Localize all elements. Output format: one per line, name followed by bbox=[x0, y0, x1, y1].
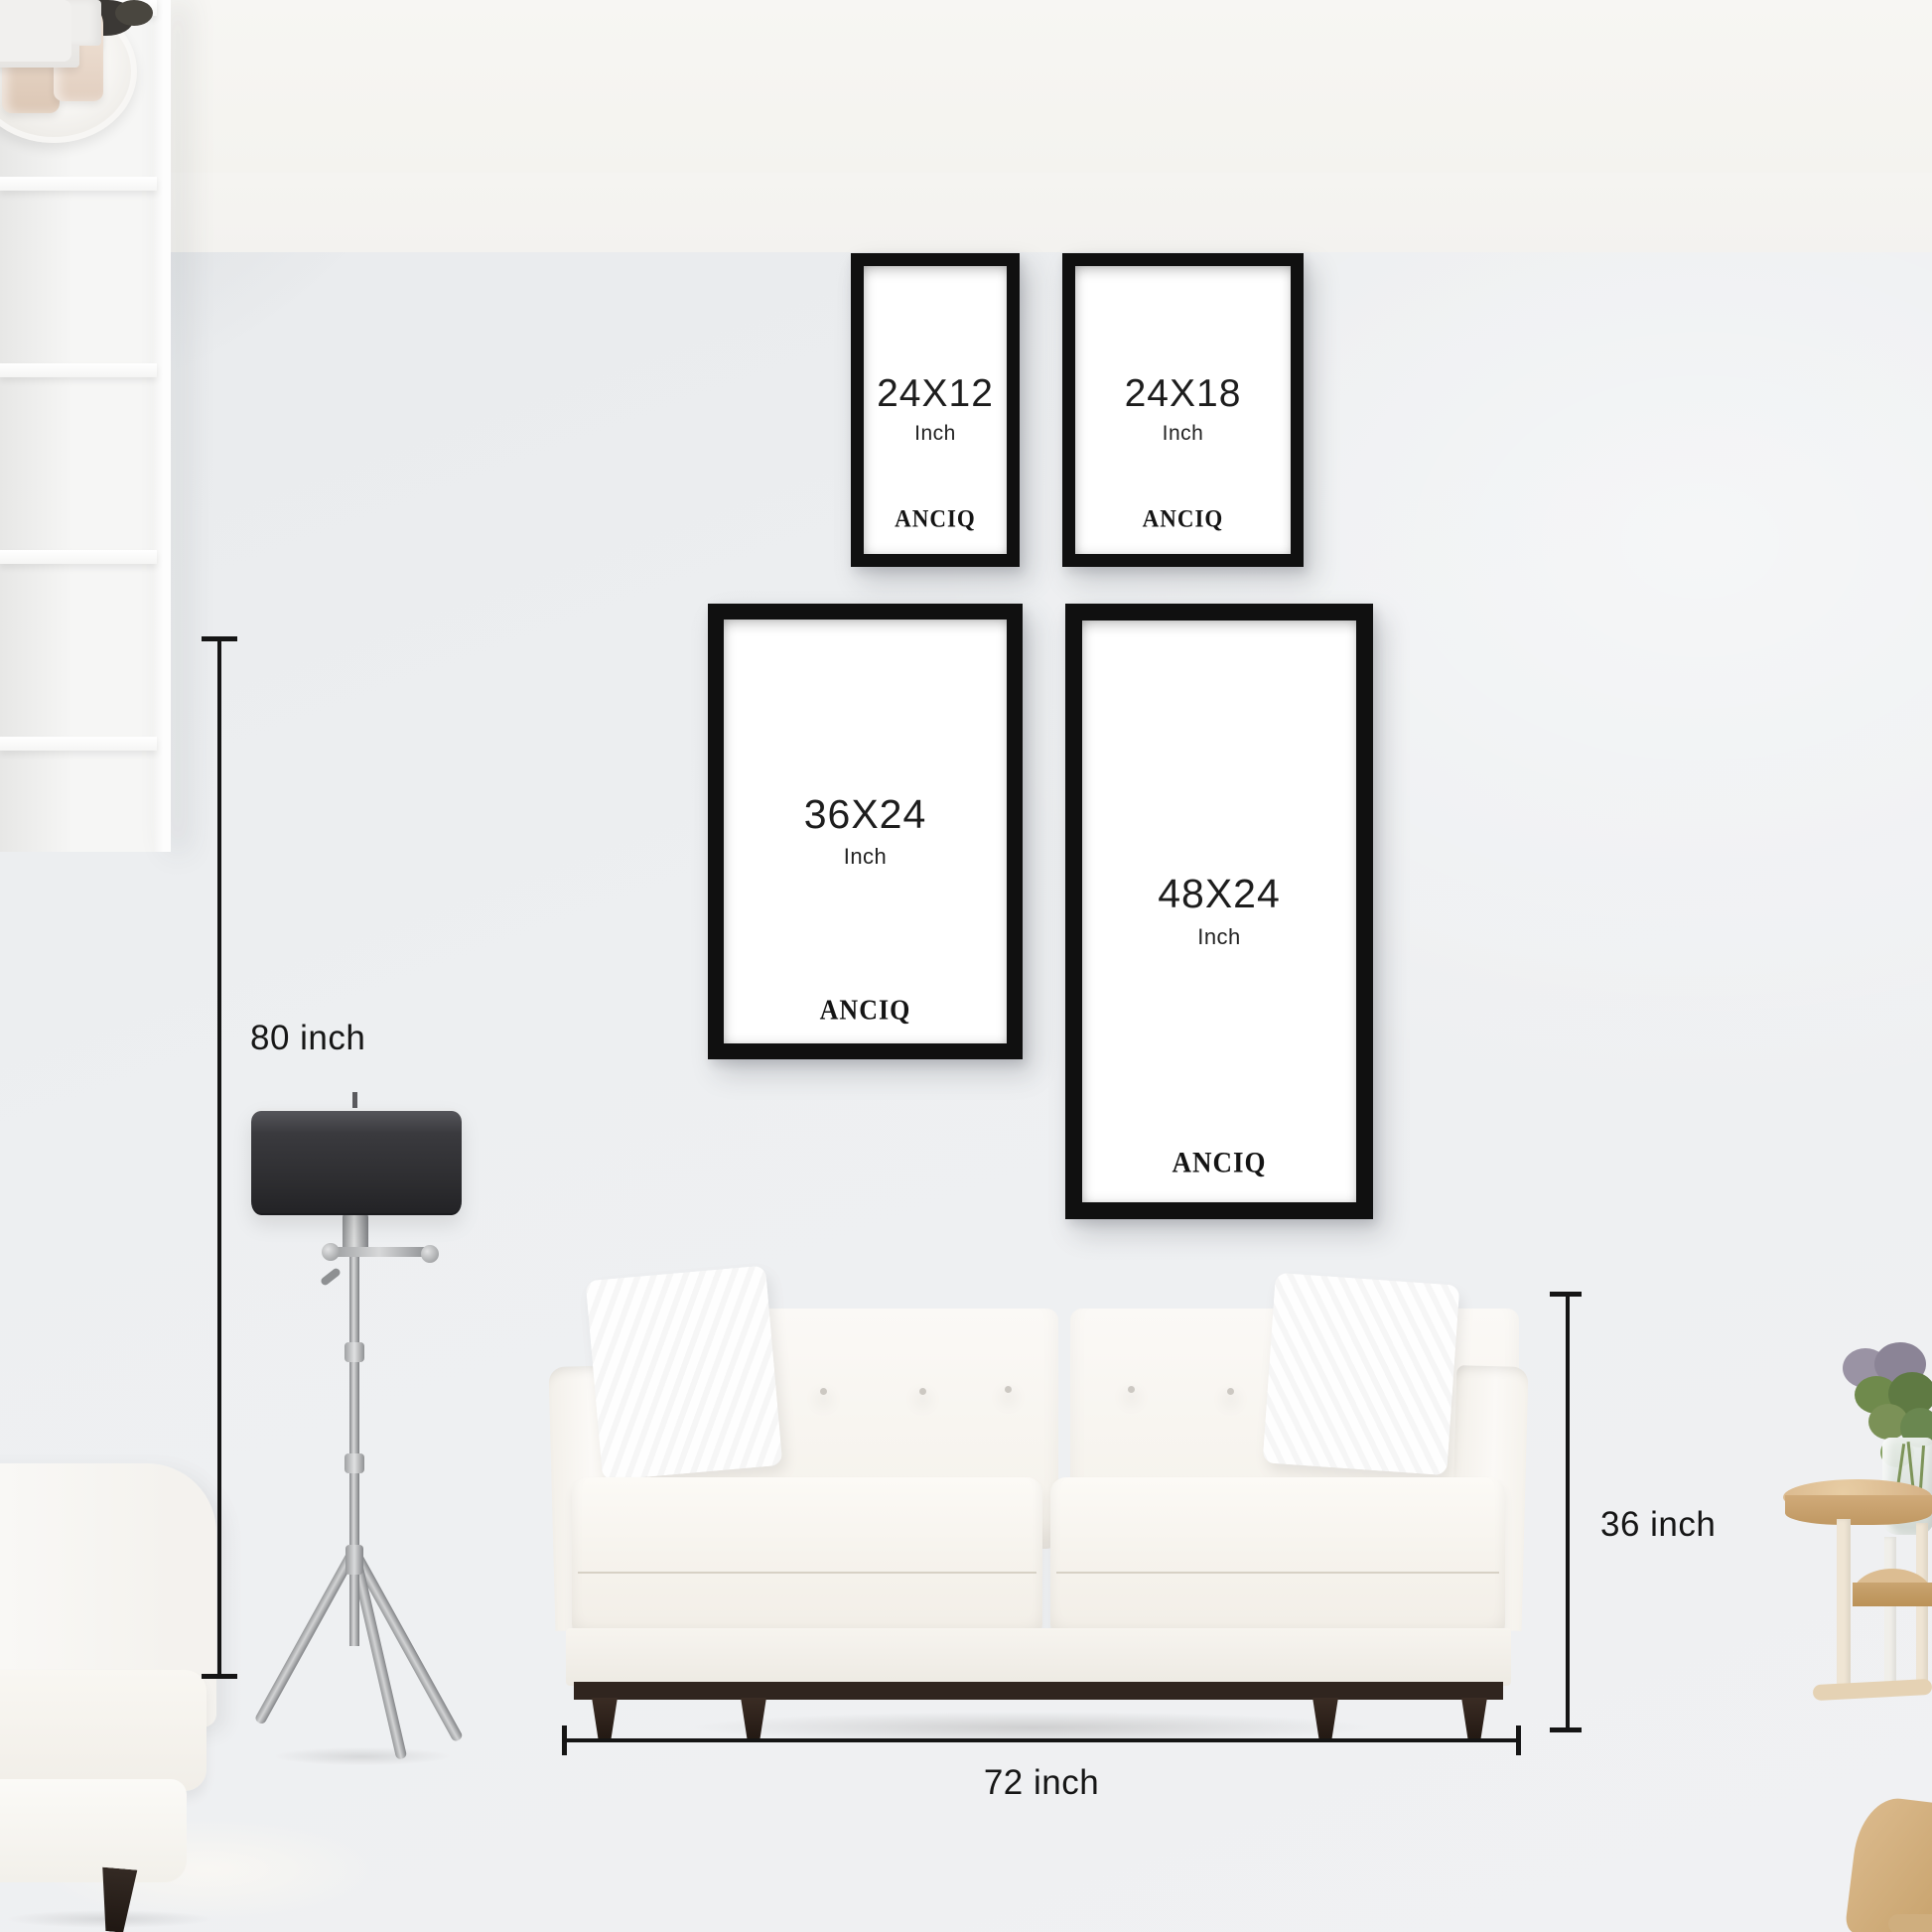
stool-foot-bottom-right bbox=[1888, 1914, 1932, 1932]
armchair-base bbox=[0, 1779, 187, 1882]
lamp-knob bbox=[322, 1243, 340, 1261]
frame-48x24: 48X24 Inch ANCIQ bbox=[1065, 604, 1373, 1219]
lamp-floor-shadow bbox=[238, 1743, 486, 1769]
armchair-floor-shadow bbox=[0, 1906, 258, 1932]
brand-logo: ANCIQ bbox=[864, 505, 1007, 533]
throw-pillow-right bbox=[1263, 1273, 1460, 1476]
sofa-width-dimension-line bbox=[564, 1738, 1519, 1742]
carpet bbox=[0, 0, 1932, 173]
bookshelf-board bbox=[0, 550, 157, 564]
decor-trinket bbox=[115, 0, 153, 26]
dimension-cap bbox=[202, 636, 237, 641]
side-table-leg bbox=[1884, 1537, 1896, 1696]
frame-24x12: 24X12 Inch ANCIQ bbox=[851, 253, 1020, 567]
lamp-pole bbox=[349, 1215, 359, 1646]
wall-height-dimension-line bbox=[217, 636, 221, 1679]
frame-unit-label: Inch bbox=[1197, 924, 1241, 950]
side-table-rim bbox=[1785, 1495, 1932, 1525]
dimension-cap bbox=[1550, 1292, 1582, 1297]
frame-24x18: 24X18 Inch ANCIQ bbox=[1062, 253, 1304, 567]
frame-24x18-mat: 24X18 Inch ANCIQ bbox=[1075, 266, 1291, 554]
dimension-cap bbox=[1550, 1727, 1582, 1732]
decor-dish bbox=[0, 0, 71, 62]
frame-36x24-mat: 36X24 Inch ANCIQ bbox=[724, 620, 1007, 1043]
side-table-leg bbox=[1837, 1519, 1851, 1694]
lamp-knob bbox=[421, 1245, 439, 1263]
frame-unit-label: Inch bbox=[914, 422, 956, 446]
brand-logo: ANCIQ bbox=[1075, 505, 1291, 533]
lamp-collar bbox=[345, 1453, 364, 1473]
lamp-crossbar bbox=[328, 1247, 431, 1257]
sofa-seat-cushion-right bbox=[1050, 1477, 1505, 1640]
frame-36x24: 36X24 Inch ANCIQ bbox=[708, 604, 1023, 1059]
brand-logo: ANCIQ bbox=[724, 995, 1007, 1027]
bookshelf-board bbox=[0, 737, 157, 751]
sofa-width-label: 72 inch bbox=[564, 1763, 1519, 1803]
armchair-cushion bbox=[0, 1670, 207, 1791]
sofa-height-dimension-line bbox=[1566, 1292, 1570, 1732]
frame-size-label: 24X18 bbox=[1125, 374, 1242, 415]
lamp-collar bbox=[345, 1342, 364, 1362]
lamp-tripod-hub bbox=[345, 1545, 363, 1575]
sofa-height-label: 36 inch bbox=[1600, 1505, 1716, 1545]
frame-size-label: 24X12 bbox=[877, 374, 994, 415]
frame-unit-label: Inch bbox=[844, 844, 888, 870]
sofa-base bbox=[566, 1628, 1511, 1686]
frame-unit-label: Inch bbox=[1163, 422, 1204, 446]
bookshelf-side-panel bbox=[153, 0, 171, 852]
sofa-seat-cushion-left bbox=[572, 1477, 1042, 1640]
sofa-wood-rail bbox=[574, 1682, 1503, 1700]
dimension-cap bbox=[1516, 1725, 1521, 1755]
bookshelf-board bbox=[0, 363, 157, 377]
lamp-finial bbox=[352, 1092, 357, 1108]
dimension-cap bbox=[202, 1674, 237, 1679]
living-room-scene: 24X12 Inch ANCIQ 24X18 Inch ANCIQ 36X24 … bbox=[0, 0, 1932, 1932]
bookshelf-board bbox=[0, 177, 157, 191]
wall-height-label: 80 inch bbox=[250, 1019, 365, 1058]
lamp-shade bbox=[251, 1108, 462, 1215]
dimension-cap bbox=[562, 1725, 567, 1755]
brand-logo: ANCIQ bbox=[1082, 1147, 1356, 1179]
frame-24x12-mat: 24X12 Inch ANCIQ bbox=[864, 266, 1007, 554]
side-table-leg bbox=[1916, 1523, 1928, 1694]
side-table-lower-rim bbox=[1853, 1583, 1932, 1606]
frame-size-label: 36X24 bbox=[804, 793, 927, 836]
sofa-floor-shadow bbox=[556, 1706, 1509, 1749]
frame-48x24-mat: 48X24 Inch ANCIQ bbox=[1082, 621, 1356, 1202]
frame-size-label: 48X24 bbox=[1158, 873, 1281, 915]
throw-pillow-left bbox=[586, 1265, 783, 1480]
